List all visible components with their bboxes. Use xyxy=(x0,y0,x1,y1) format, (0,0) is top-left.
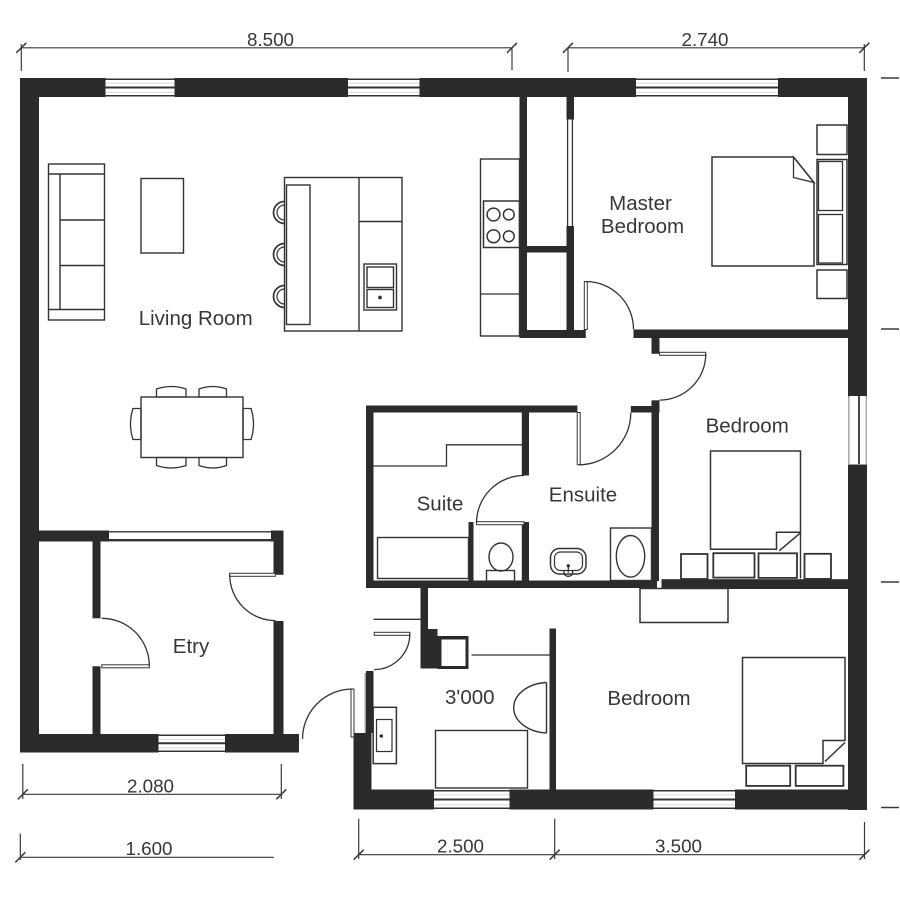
svg-text:3'000: 3'000 xyxy=(445,686,495,709)
svg-text:Ensuite: Ensuite xyxy=(549,484,617,507)
svg-text:Bedroom: Bedroom xyxy=(601,215,684,238)
svg-text:Bedroom: Bedroom xyxy=(607,687,690,710)
svg-text:2.080: 2.080 xyxy=(127,776,174,797)
svg-text:Living Room: Living Room xyxy=(139,307,253,330)
svg-text:3.500: 3.500 xyxy=(655,835,702,856)
svg-text:8.500: 8.500 xyxy=(247,29,294,50)
svg-text:Bedroom: Bedroom xyxy=(706,415,789,438)
svg-text:2.740: 2.740 xyxy=(682,29,729,50)
svg-text:Master: Master xyxy=(609,192,672,215)
svg-text:2.500: 2.500 xyxy=(437,835,484,856)
svg-text:1.600: 1.600 xyxy=(126,838,173,859)
svg-text:Suite: Suite xyxy=(417,493,464,516)
svg-text:Etry: Etry xyxy=(173,635,210,658)
